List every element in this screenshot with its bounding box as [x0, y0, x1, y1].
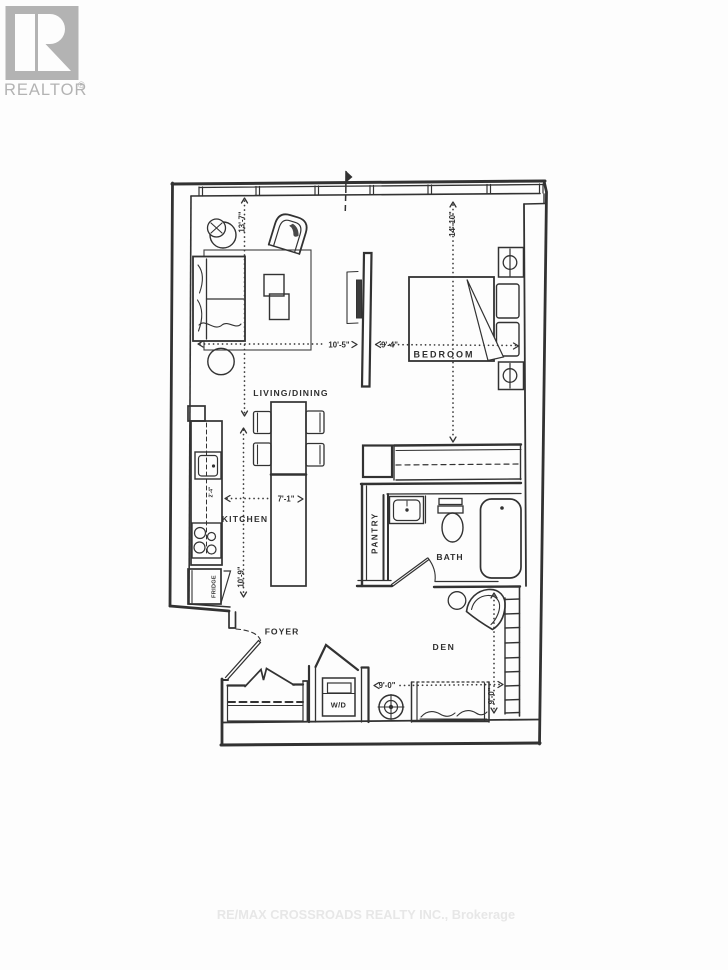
- svg-text:PANTRY: PANTRY: [371, 512, 380, 554]
- svg-text:®: ®: [78, 80, 85, 90]
- svg-text:RE/MAX CROSSROADS REALTY INC.,: RE/MAX CROSSROADS REALTY INC., Brokerage: [217, 907, 515, 922]
- svg-text:W/D: W/D: [331, 701, 347, 710]
- svg-text:REALTOR: REALTOR: [4, 81, 87, 99]
- svg-text:7'-1": 7'-1": [278, 495, 295, 504]
- svg-text:BEDROOM: BEDROOM: [414, 350, 475, 360]
- svg-text:13'-7": 13'-7": [238, 211, 247, 232]
- svg-text:KITCHEN: KITCHEN: [222, 514, 269, 524]
- svg-text:LIVING/DINING: LIVING/DINING: [253, 388, 328, 398]
- svg-text:9'-4": 9'-4": [381, 341, 398, 350]
- svg-text:10'-9": 10'-9": [237, 566, 246, 587]
- svg-text:10'-5": 10'-5": [328, 341, 349, 350]
- svg-text:BATH: BATH: [436, 552, 463, 562]
- svg-text:FOYER: FOYER: [265, 627, 300, 637]
- svg-text:14'-10": 14'-10": [448, 211, 457, 237]
- svg-text:9'-0": 9'-0": [487, 687, 496, 704]
- svg-text:2'-4": 2'-4": [209, 486, 215, 497]
- svg-text:FRIDGE: FRIDGE: [212, 575, 218, 598]
- svg-text:9'-0": 9'-0": [379, 681, 396, 690]
- svg-text:DEN: DEN: [433, 642, 456, 652]
